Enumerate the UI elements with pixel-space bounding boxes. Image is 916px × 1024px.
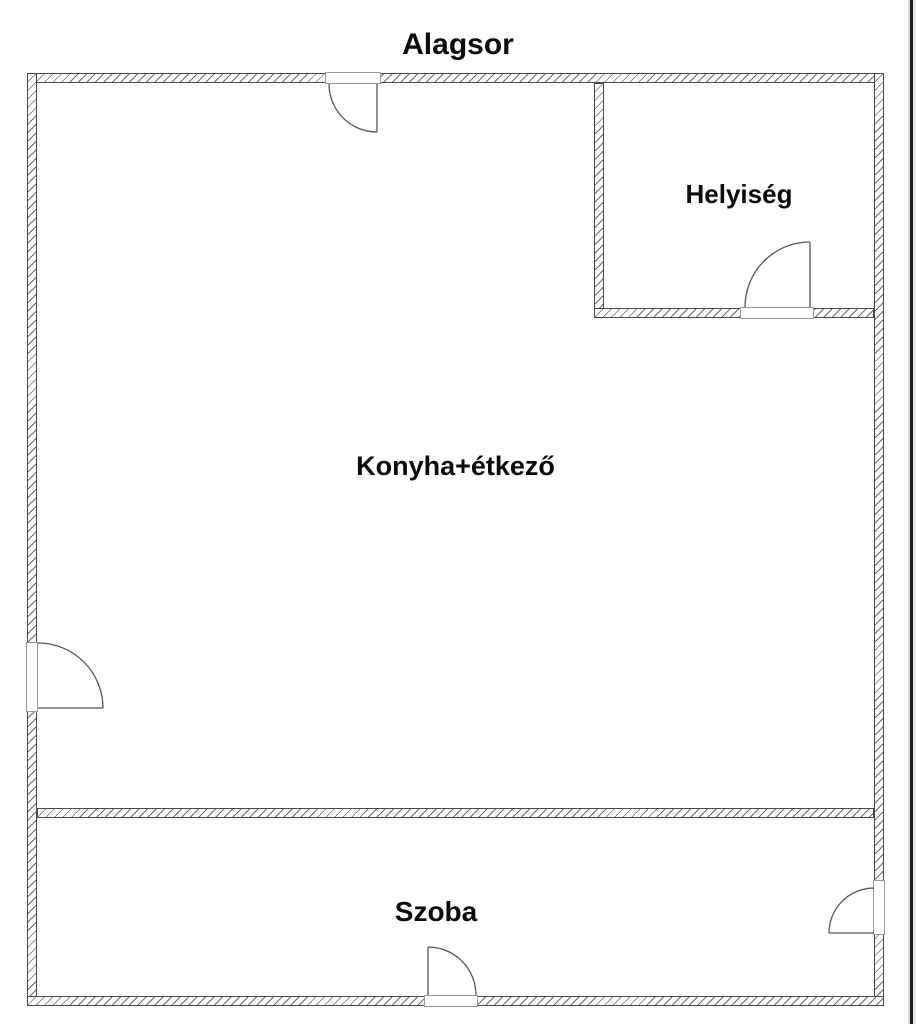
door-swing-helyiseg: [745, 242, 810, 307]
room-label-helyiseg: Helyiség: [604, 179, 874, 210]
door-swing-bottom: [428, 947, 476, 995]
floor-title: Alagsor: [0, 28, 916, 62]
door-swing-left: [38, 643, 103, 708]
room-label-konyha-etkezo: Konyha+étkező: [37, 451, 874, 482]
door-swings-layer: [0, 0, 916, 1024]
room-label-szoba: Szoba: [0, 896, 872, 928]
door-swing-top: [329, 84, 377, 132]
floor-plan: Alagsor Helyiség Konyha+étkező Szoba: [0, 0, 916, 1024]
